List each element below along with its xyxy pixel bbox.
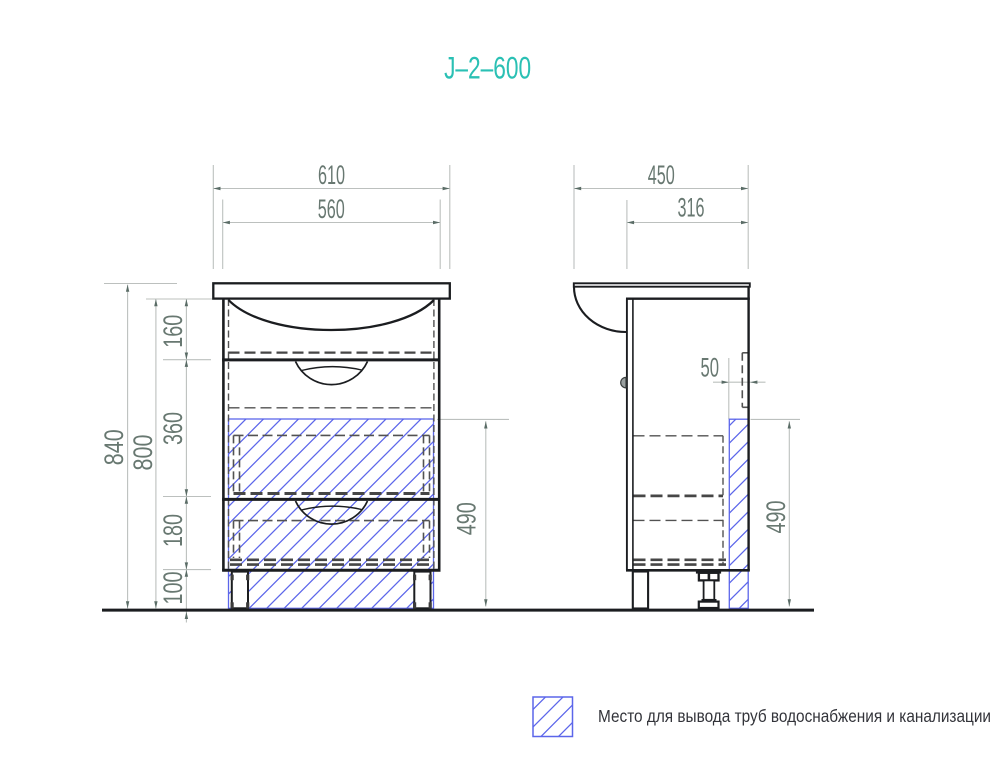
svg-text:360: 360 — [158, 412, 188, 445]
svg-text:100: 100 — [158, 572, 188, 605]
svg-text:50: 50 — [701, 353, 720, 383]
svg-text:490: 490 — [761, 501, 791, 534]
svg-text:316: 316 — [678, 193, 705, 223]
svg-text:840: 840 — [99, 429, 129, 465]
svg-text:180: 180 — [158, 514, 188, 547]
svg-text:J–2–600: J–2–600 — [444, 49, 531, 85]
svg-text:800: 800 — [128, 435, 158, 471]
svg-text:160: 160 — [158, 315, 188, 348]
svg-text:610: 610 — [318, 160, 345, 190]
svg-text:Место для вывода труб водоснаб: Место для вывода труб водоснабжения и ка… — [598, 706, 991, 726]
svg-text:490: 490 — [452, 502, 482, 535]
svg-text:450: 450 — [648, 160, 675, 190]
svg-text:560: 560 — [318, 194, 345, 224]
